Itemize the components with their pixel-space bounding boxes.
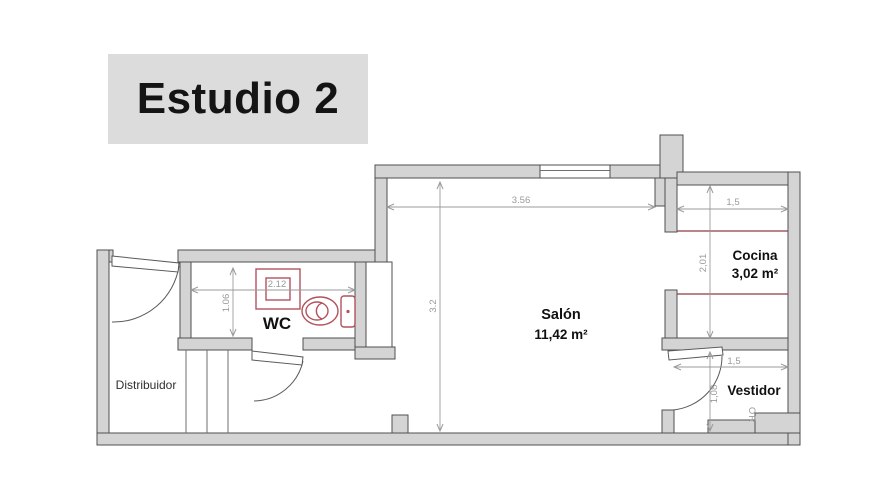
wall-segment: [97, 433, 800, 445]
room-area-salon: 11,42 m²: [534, 327, 588, 342]
wall-segment: [178, 338, 252, 350]
wall-segment: [392, 415, 408, 433]
toilet-icon: [302, 297, 338, 325]
wall-segment: [97, 250, 109, 445]
wall-segment: [677, 172, 800, 185]
room-labels: WC Salón 11,42 m² Cocina 3,02 m² Vestido…: [116, 248, 782, 423]
room-label-vestidor: Vestidor: [727, 383, 781, 398]
dimension-label-cocina-depth: 2,01: [698, 254, 709, 273]
wall-segment: [662, 338, 788, 350]
wall-segment: [355, 347, 395, 359]
dimension-label-cocina-width: 1,5: [726, 197, 739, 208]
closet-partition: [186, 350, 228, 433]
door-swing-arc: [254, 361, 303, 401]
wall-segment: [180, 262, 191, 350]
wc-door: [252, 351, 303, 401]
wall-segment: [178, 250, 387, 262]
wall-segment: [375, 165, 540, 178]
dimension-label-salon-depth: 3.2: [428, 299, 439, 312]
dimension-label-wc-width: 2.12: [268, 279, 287, 290]
door-swing-arc: [112, 266, 179, 322]
wall-segment: [375, 165, 387, 262]
dimension-label-wc-depth: 1.06: [221, 294, 232, 313]
door-leaf: [252, 351, 303, 365]
wall-segment: [665, 178, 677, 232]
wall-segment: [662, 410, 674, 433]
dimension-label-vestidor-depth: 1,08: [709, 385, 720, 404]
duct-shaft: [366, 262, 392, 347]
dimension-label-salon-width: 3.56: [512, 195, 531, 206]
room-label-distribuidor: Distribuidor: [116, 378, 177, 392]
entrance-door: [112, 256, 179, 322]
room-label-wc: WC: [263, 314, 291, 333]
door-leaf: [112, 256, 179, 272]
wall-segment: [755, 413, 800, 433]
floor-plan: 3.56 3.2 2.12 1.06 1,5 2,01 1,5 1,08 WC …: [0, 0, 890, 500]
room-label-salon: Salón: [541, 307, 580, 323]
wall-segment: [355, 262, 366, 359]
dimension-label-vestidor-width: 1,5: [727, 356, 740, 367]
room-area-cocina: 3,02 m²: [732, 266, 779, 281]
page: Estudio 2: [0, 0, 890, 500]
window-frame: [540, 165, 610, 178]
toilet-icon-crescent: [316, 303, 322, 319]
window: [540, 165, 610, 178]
wall-segment: [788, 172, 800, 445]
room-label-cocina: Cocina: [732, 248, 778, 263]
toilet-cistern-button: [346, 310, 349, 313]
sideways-annotation: OR: [746, 407, 757, 423]
